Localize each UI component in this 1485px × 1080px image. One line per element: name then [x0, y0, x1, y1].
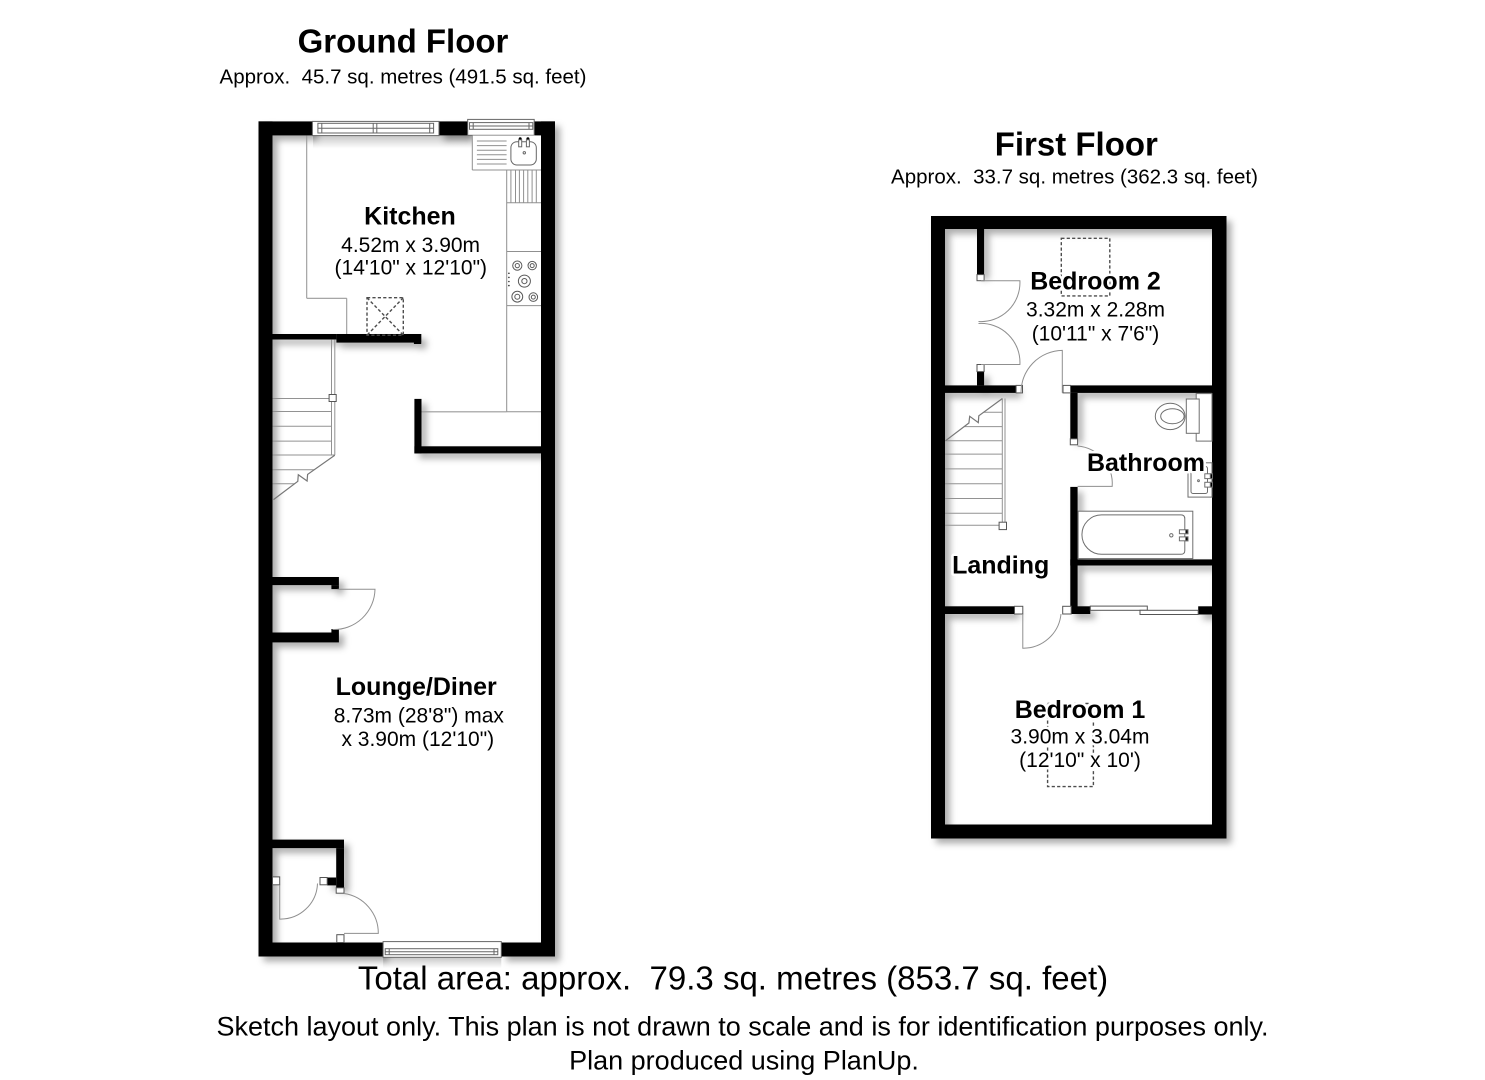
- svg-text:Landing: Landing: [952, 552, 1049, 580]
- svg-text:3.32m x 2.28m: 3.32m x 2.28m: [1026, 299, 1165, 322]
- svg-text:Sketch layout only. This plan: Sketch layout only. This plan is not dra…: [216, 1012, 1268, 1042]
- svg-text:Bedroom 1: Bedroom 1: [1015, 696, 1146, 724]
- svg-text:(12'10" x 10'): (12'10" x 10'): [1019, 749, 1141, 772]
- svg-text:8.73m (28'8") max: 8.73m (28'8") max: [334, 705, 505, 728]
- svg-text:Kitchen: Kitchen: [364, 203, 456, 231]
- svg-text:(14'10" x 12'10"): (14'10" x 12'10"): [335, 257, 488, 280]
- svg-text:4.52m x 3.90m: 4.52m x 3.90m: [341, 234, 480, 257]
- svg-text:Bathroom: Bathroom: [1087, 449, 1205, 477]
- svg-text:Ground Floor: Ground Floor: [298, 23, 509, 60]
- svg-text:x 3.90m (12'10"): x 3.90m (12'10"): [341, 728, 494, 751]
- svg-text:3.90m x 3.04m: 3.90m x 3.04m: [1011, 726, 1150, 749]
- svg-text:Bedroom 2: Bedroom 2: [1030, 268, 1161, 296]
- svg-text:Lounge/Diner: Lounge/Diner: [336, 673, 497, 701]
- svg-text:Approx. 33.7 sq. metres (362.: Approx. 33.7 sq. metres (362.3 sq. feet): [891, 166, 1258, 189]
- svg-text:Plan produced using PlanUp.: Plan produced using PlanUp.: [569, 1046, 919, 1076]
- svg-text:First Floor: First Floor: [995, 126, 1158, 163]
- svg-text:Approx. 45.7 sq. metres (491.: Approx. 45.7 sq. metres (491.5 sq. feet): [220, 66, 587, 89]
- svg-text:Total area: approx. 79.3 sq.: Total area: approx. 79.3 sq. metres (853…: [358, 960, 1108, 997]
- svg-text:(10'11" x 7'6"): (10'11" x 7'6"): [1032, 322, 1160, 345]
